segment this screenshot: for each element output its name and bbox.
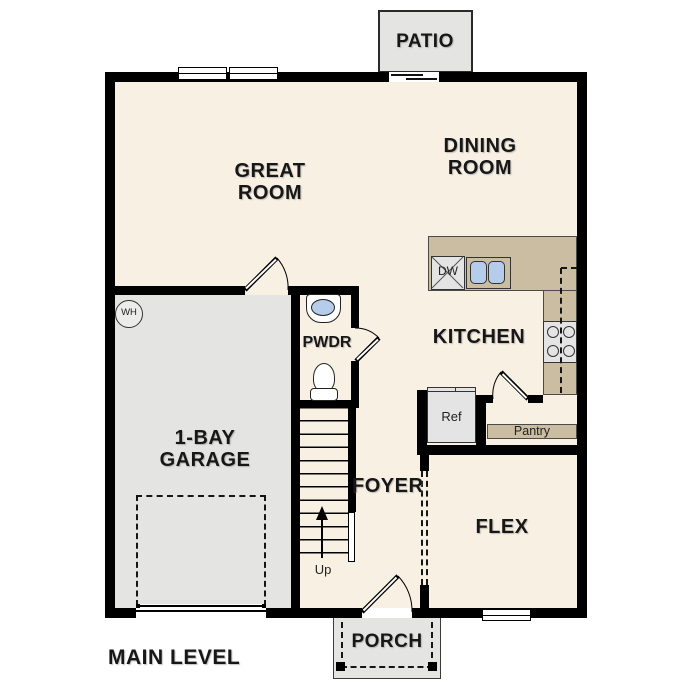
room-label-powder: PWDR xyxy=(300,334,354,352)
window-mullion xyxy=(483,615,530,616)
sink-basin xyxy=(470,261,487,284)
porch-post xyxy=(336,662,345,671)
wall xyxy=(291,286,300,608)
wall xyxy=(351,286,359,328)
room-label-porch: PORCH xyxy=(337,631,437,652)
burner-icon xyxy=(563,345,575,357)
garage-door-line xyxy=(136,610,266,612)
plan-level-title: MAIN LEVEL xyxy=(108,646,268,670)
burner-icon xyxy=(563,326,575,338)
door-swing-porch xyxy=(360,573,414,615)
sliding-door-panel xyxy=(406,78,437,80)
wall xyxy=(105,72,115,618)
water-heater-label: WH xyxy=(115,308,143,319)
vanity-sink xyxy=(306,294,341,323)
burner-icon xyxy=(547,345,559,357)
porch-post xyxy=(428,662,437,671)
room-label-garage: 1-BAY GARAGE xyxy=(150,427,260,472)
cabinet-dashed-line xyxy=(560,268,562,393)
sliding-door-panel xyxy=(391,74,423,76)
garage-door-end xyxy=(262,604,266,608)
room-label-great-room: GREAT ROOM xyxy=(220,160,320,205)
burner-icon xyxy=(547,326,559,338)
garage-door-end xyxy=(136,604,140,608)
garage-door-track-dashed xyxy=(136,495,266,497)
wall xyxy=(417,445,587,455)
refrigerator-label: Ref xyxy=(427,410,476,425)
cabinet-dashed-line xyxy=(561,267,577,269)
dishwasher-label: DW xyxy=(431,265,465,278)
garage-door-track-dashed xyxy=(136,495,138,606)
stair-railing xyxy=(348,512,355,562)
window xyxy=(178,67,227,80)
floor-plan: DW Ref Pantry Up xyxy=(0,0,687,687)
sink-basin xyxy=(311,299,335,316)
door-swing-kitchen xyxy=(488,362,532,402)
stairs-up-arrow-shaft xyxy=(321,518,323,558)
room-label-dining-room: DINING ROOM xyxy=(430,135,530,180)
sliding-door-opening xyxy=(389,72,439,82)
room-label-patio: PATIO xyxy=(375,31,475,52)
wall xyxy=(420,455,429,471)
garage-door xyxy=(136,604,266,618)
garage-door-line xyxy=(136,605,266,607)
toilet-tank xyxy=(310,388,338,401)
window-mullion xyxy=(230,73,277,74)
window-mullion xyxy=(179,73,226,74)
window xyxy=(482,609,531,621)
stair-treads xyxy=(300,407,348,565)
pantry-label: Pantry xyxy=(487,424,577,438)
room-label-flex: FLEX xyxy=(462,516,542,538)
door-swing-garage xyxy=(243,252,291,292)
wall xyxy=(420,585,429,608)
stairs-up-label: Up xyxy=(309,563,337,578)
room-label-kitchen: KITCHEN xyxy=(424,326,534,348)
door-swing-powder xyxy=(350,324,384,366)
room-label-foyer: FOYER xyxy=(352,475,422,497)
cased-opening-dashed xyxy=(426,471,428,585)
refrigerator-door-line xyxy=(428,391,475,392)
window xyxy=(229,67,278,80)
refrigerator-door-split xyxy=(455,388,456,392)
garage-door-track-dashed xyxy=(264,495,266,606)
sink-basin xyxy=(488,261,505,284)
wall xyxy=(577,72,587,618)
kitchen-sink xyxy=(466,257,511,289)
